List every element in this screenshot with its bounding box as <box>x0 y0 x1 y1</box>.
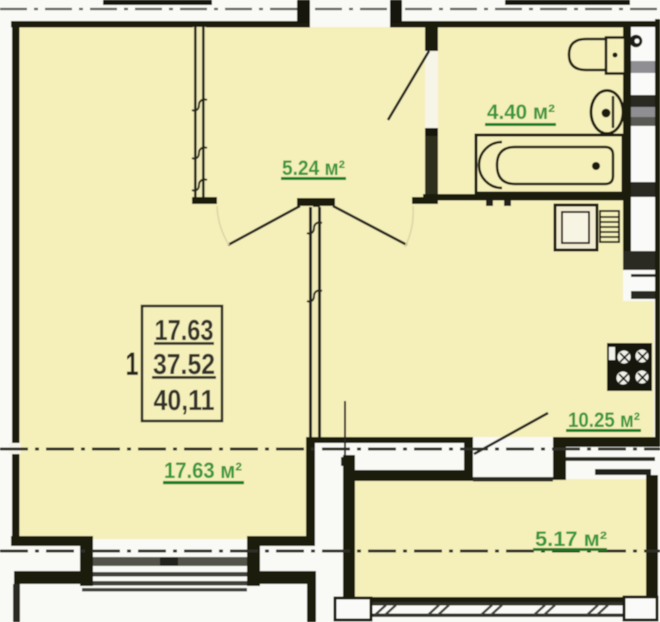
svg-text:4.40 м²: 4.40 м² <box>487 101 555 124</box>
svg-text:1: 1 <box>126 346 139 382</box>
svg-text:10.25 м²: 10.25 м² <box>568 409 640 432</box>
svg-text:40,11: 40,11 <box>154 385 215 417</box>
svg-text:5.24 м²: 5.24 м² <box>282 157 345 180</box>
svg-text:17.63 м²: 17.63 м² <box>164 458 242 483</box>
svg-text:5.17 м²: 5.17 м² <box>535 528 607 551</box>
